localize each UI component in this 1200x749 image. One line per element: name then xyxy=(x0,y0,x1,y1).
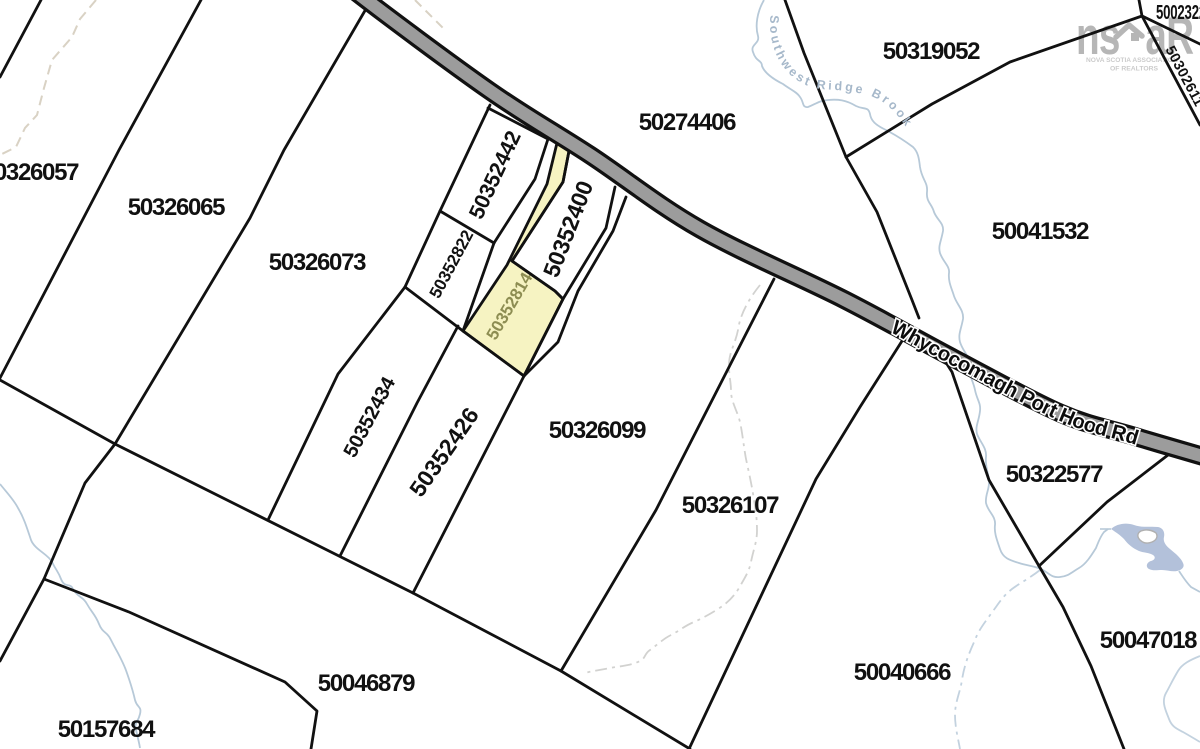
svg-text:50326073: 50326073 xyxy=(269,249,366,276)
svg-text:50326099: 50326099 xyxy=(549,417,646,444)
svg-text:50319052: 50319052 xyxy=(883,38,980,65)
svg-text:50322577: 50322577 xyxy=(1006,461,1103,488)
svg-text:50040666: 50040666 xyxy=(854,659,951,686)
svg-text:50326057: 50326057 xyxy=(0,159,79,186)
svg-text:50326065: 50326065 xyxy=(128,194,225,221)
svg-text:50047018: 50047018 xyxy=(1100,627,1197,654)
svg-text:50274406: 50274406 xyxy=(639,109,736,136)
svg-text:50041532: 50041532 xyxy=(992,218,1089,245)
svg-text:OF REALTORS: OF REALTORS xyxy=(1110,66,1159,73)
svg-text:50023225: 50023225 xyxy=(1156,1,1200,23)
svg-text:50326107: 50326107 xyxy=(682,492,779,519)
svg-text:50157684: 50157684 xyxy=(58,716,156,743)
svg-text:50046879: 50046879 xyxy=(318,670,415,697)
